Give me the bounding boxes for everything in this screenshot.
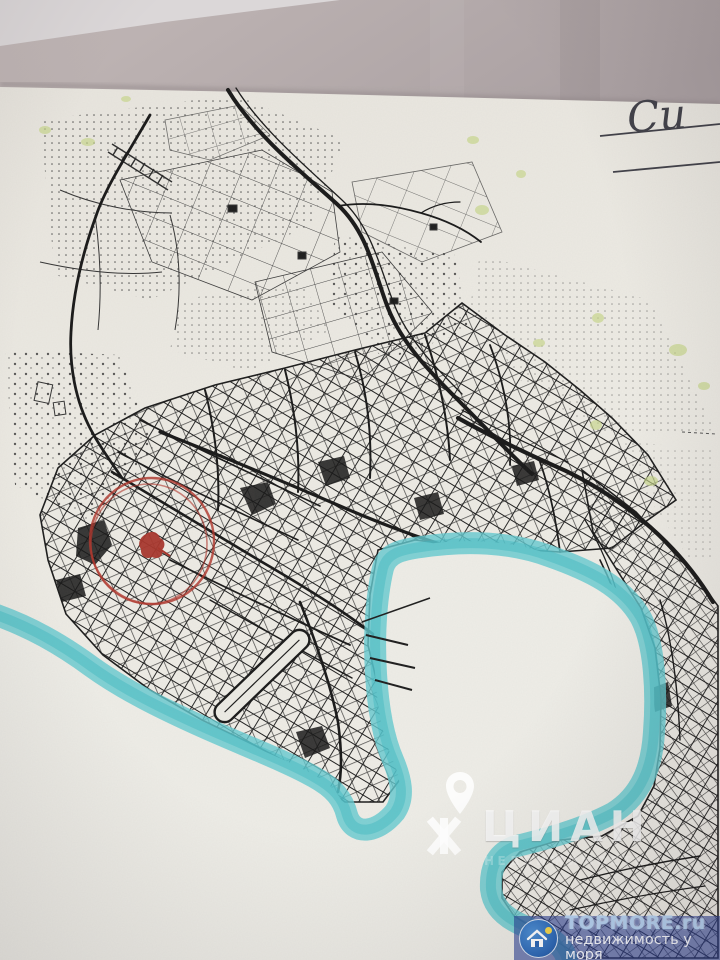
topmore-watermark: TOPMORE.ru недвижимость у моря: [514, 916, 720, 960]
house-in-circle-icon: [519, 919, 558, 958]
house-icon: [526, 929, 548, 949]
topmore-site-label: TOPMORE.ru: [565, 913, 720, 933]
map-photo-canvas: Си: [0, 0, 720, 960]
photo-of-paper-map: Си ЦИАН НЕДВИЖИМОСТЬ TOPMORE.ru недвижим…: [0, 0, 720, 960]
paper-grain: [0, 86, 720, 960]
topmore-texts: TOPMORE.ru недвижимость у моря: [565, 913, 720, 960]
topmore-tagline: недвижимость у моря: [565, 933, 720, 960]
